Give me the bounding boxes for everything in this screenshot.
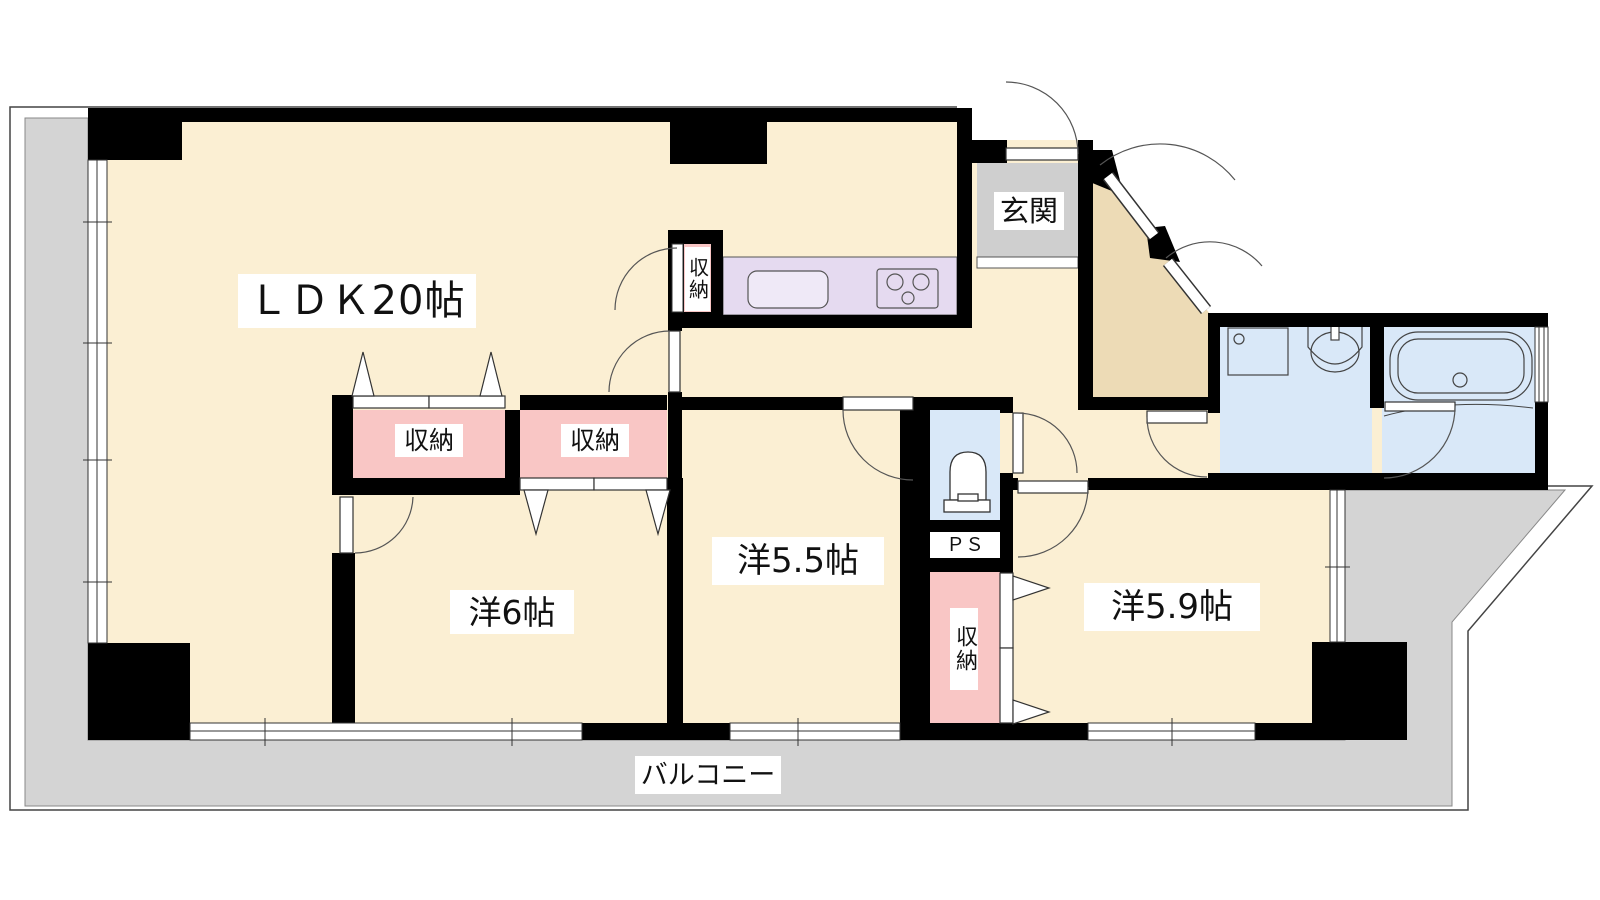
ldk-hall-door-leaf <box>669 331 680 392</box>
balcony-label: バルコニー <box>635 756 781 794</box>
kitchen-sink <box>748 271 828 308</box>
pillar-top-left <box>88 108 182 160</box>
room6-label: 洋6帖 <box>450 590 574 634</box>
room59-door-leaf <box>1018 481 1088 493</box>
pillar-bottom-left <box>88 643 190 740</box>
closet-bottom-label: 収納 <box>950 608 978 690</box>
entrance-label: 玄関 <box>994 192 1064 230</box>
room6-door-leaf <box>340 497 353 553</box>
entrance-door-leaf <box>1006 148 1078 160</box>
closet-left-label: 収納 <box>395 424 463 457</box>
washroom-area <box>1220 327 1372 478</box>
room59-label: 洋5.9帖 <box>1084 583 1260 631</box>
pillar-bottom-right <box>1312 642 1407 740</box>
window-bath-east <box>1535 327 1548 402</box>
room55-door-leaf <box>843 397 913 410</box>
pillar-top-mid <box>670 108 767 164</box>
bath-door-leaf <box>1385 402 1455 411</box>
washroom-door-leaf <box>1147 411 1207 423</box>
floor-plan: ＬＤＫ20帖 玄関 収納 収納 収納 洋6帖 洋5.5帖 洋5.9帖 ＰＳ 収納… <box>0 0 1600 900</box>
entry-hall-door-arc-1 <box>1100 144 1235 180</box>
ps-label: ＰＳ <box>933 533 997 557</box>
entry-hall-door-arc-2 <box>1166 242 1262 266</box>
entrance-step <box>977 257 1078 268</box>
toilet-door-leaf <box>1013 413 1023 473</box>
kitchen-counter <box>723 257 957 315</box>
room55-label: 洋5.5帖 <box>712 537 884 585</box>
kitchen-closet-label: 収納 <box>685 247 710 311</box>
floor-plan-drawing <box>0 0 1600 900</box>
closet-right-label: 収納 <box>561 424 629 457</box>
ldk-label: ＬＤＫ20帖 <box>238 274 476 328</box>
